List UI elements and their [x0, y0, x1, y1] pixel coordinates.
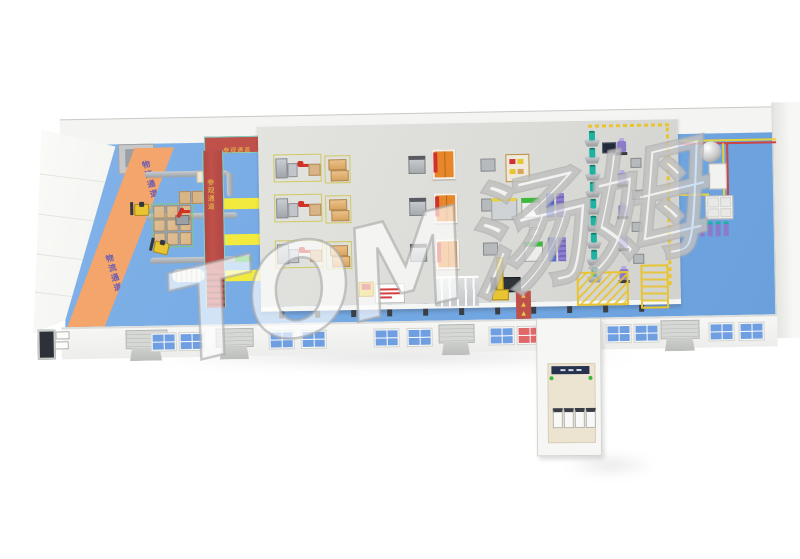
dock-ramp [442, 342, 470, 356]
side-door [37, 330, 56, 360]
process-machine [408, 156, 425, 174]
fire-cabinet [359, 282, 374, 297]
storage-rack [505, 154, 530, 182]
yellow-crossing [224, 270, 262, 282]
annex-unit [553, 408, 563, 428]
mixer-machine [585, 167, 601, 180]
indicator-dot [549, 376, 553, 380]
annex-unit [575, 408, 585, 428]
platform-stairs [435, 276, 480, 307]
front-window [605, 324, 631, 343]
indicator-dot [588, 376, 592, 380]
ladder-tower [640, 264, 669, 309]
front-window [150, 332, 176, 351]
arrow-glyph: ▲ [521, 293, 526, 299]
small-machine [480, 158, 495, 171]
door-label-plate [55, 331, 69, 339]
forklift [130, 202, 148, 216]
pallet-pair [179, 191, 204, 204]
green-machine [524, 242, 543, 262]
mixer-machine [584, 133, 600, 146]
door-label-plate [55, 341, 69, 349]
front-window [178, 332, 204, 351]
yellow-crossing [224, 234, 262, 246]
aux-unit [632, 190, 643, 200]
orange-cabinet [436, 239, 460, 269]
front-window [268, 330, 294, 349]
mixer-machine [586, 235, 602, 248]
mixer-machine [585, 201, 601, 214]
four-bay-unit [705, 195, 733, 220]
workstation-cell [274, 194, 323, 223]
rollup-door [438, 324, 474, 344]
aux-unit [633, 254, 644, 264]
green-machine [521, 198, 540, 218]
annex-building [536, 318, 602, 457]
annex-interior [547, 363, 596, 443]
factory-scene: 物流通道 物流通道 参观通道 参观通道 [0, 0, 800, 559]
operator-machine [618, 234, 629, 251]
dock-ramp [220, 346, 249, 360]
orange-cabinet [434, 193, 458, 223]
pallet-station [324, 155, 351, 183]
white-boxes [528, 220, 538, 235]
aux-unit [632, 222, 643, 232]
pallet-station [326, 241, 353, 269]
robot-arm [175, 207, 191, 223]
front-window [738, 322, 764, 341]
tray-stacks [546, 193, 564, 217]
conveyor-green-segment [235, 256, 251, 262]
workstation-cell [273, 154, 322, 183]
front-window [488, 326, 514, 345]
platform-railing [666, 127, 672, 287]
mixer-machine [585, 218, 601, 231]
annex-unit [586, 408, 596, 428]
orange-cabinet [432, 149, 456, 179]
visitor-walkway-label: 参观通道 [206, 179, 217, 211]
aux-unit [630, 158, 641, 168]
conveyor-bend [227, 172, 233, 196]
front-window [373, 328, 399, 347]
visitor-walkway: 参观通道 [202, 150, 225, 270]
process-machine [409, 198, 426, 216]
rollup-door [660, 320, 699, 340]
mixer-machine [584, 150, 600, 163]
yellow-stairs [576, 271, 629, 306]
rollup-door [215, 328, 253, 348]
pallet-station [325, 195, 352, 223]
arrow-glyph: ▲ [521, 302, 526, 308]
walkway-stairs [205, 269, 226, 307]
annex-unit [564, 408, 574, 428]
operator-machine [617, 170, 628, 187]
dosing-skids [697, 217, 731, 240]
process-machine [410, 244, 427, 262]
arrow-glyph: ▲ [521, 311, 526, 317]
notice-board [375, 283, 405, 304]
annex-control-panel [551, 366, 589, 374]
operator-machine [616, 138, 627, 155]
dock-ramp [665, 338, 695, 352]
front-window [708, 322, 734, 341]
platform-railing [588, 123, 672, 128]
small-machine [483, 242, 498, 255]
front-window [300, 330, 326, 349]
yellow-crossing [223, 198, 261, 210]
front-window [406, 328, 432, 347]
transfer-table [491, 198, 517, 220]
mixer-machine [586, 252, 602, 265]
workstation-cell [275, 240, 324, 269]
operator-machine [617, 202, 628, 219]
scissor-lift [491, 257, 507, 299]
curved-conveyor [172, 269, 204, 283]
utility-cabinet [708, 163, 726, 189]
front-window [633, 323, 659, 342]
mixer-machine [585, 184, 601, 197]
control-screen [602, 142, 616, 153]
visitor-walkway-top-label: 参观通道 [223, 147, 251, 155]
export-lane: ▲ ▲ ▲ [516, 291, 532, 319]
factory-building: 物流通道 物流通道 参观通道 参观通道 [35, 100, 782, 376]
tray-stacks [548, 237, 566, 261]
